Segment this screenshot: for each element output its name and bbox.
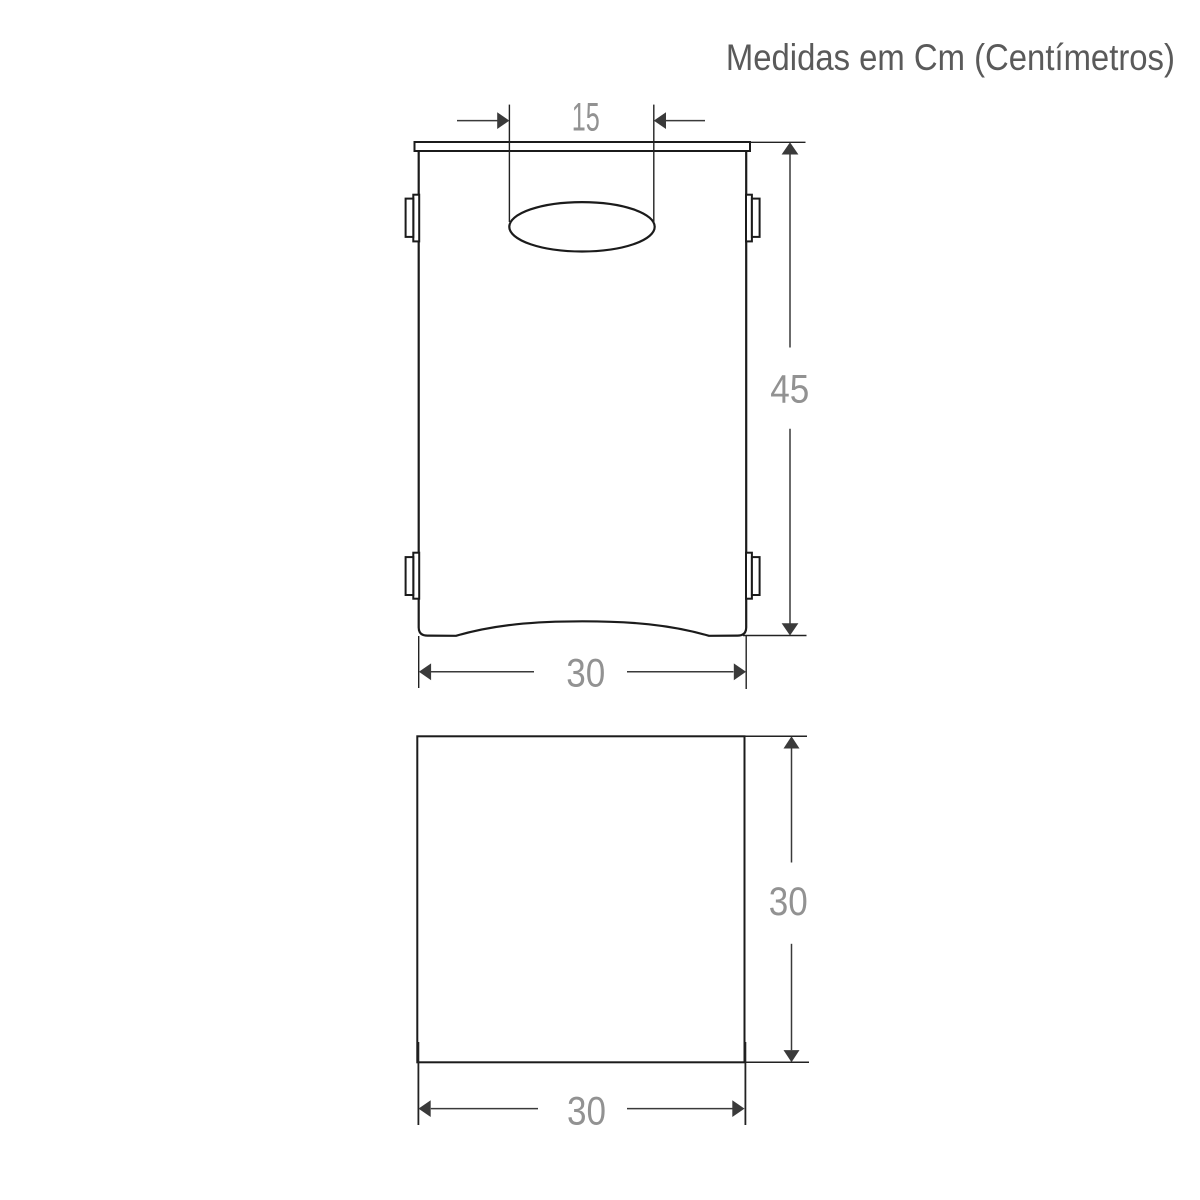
svg-text:30: 30 (566, 652, 605, 696)
svg-text:Medidas em Cm (Centímetros): Medidas em Cm (Centímetros) (726, 37, 1175, 78)
svg-text:30: 30 (769, 880, 808, 924)
svg-text:45: 45 (770, 368, 809, 412)
svg-text:30: 30 (567, 1090, 606, 1134)
svg-text:15: 15 (572, 96, 600, 140)
